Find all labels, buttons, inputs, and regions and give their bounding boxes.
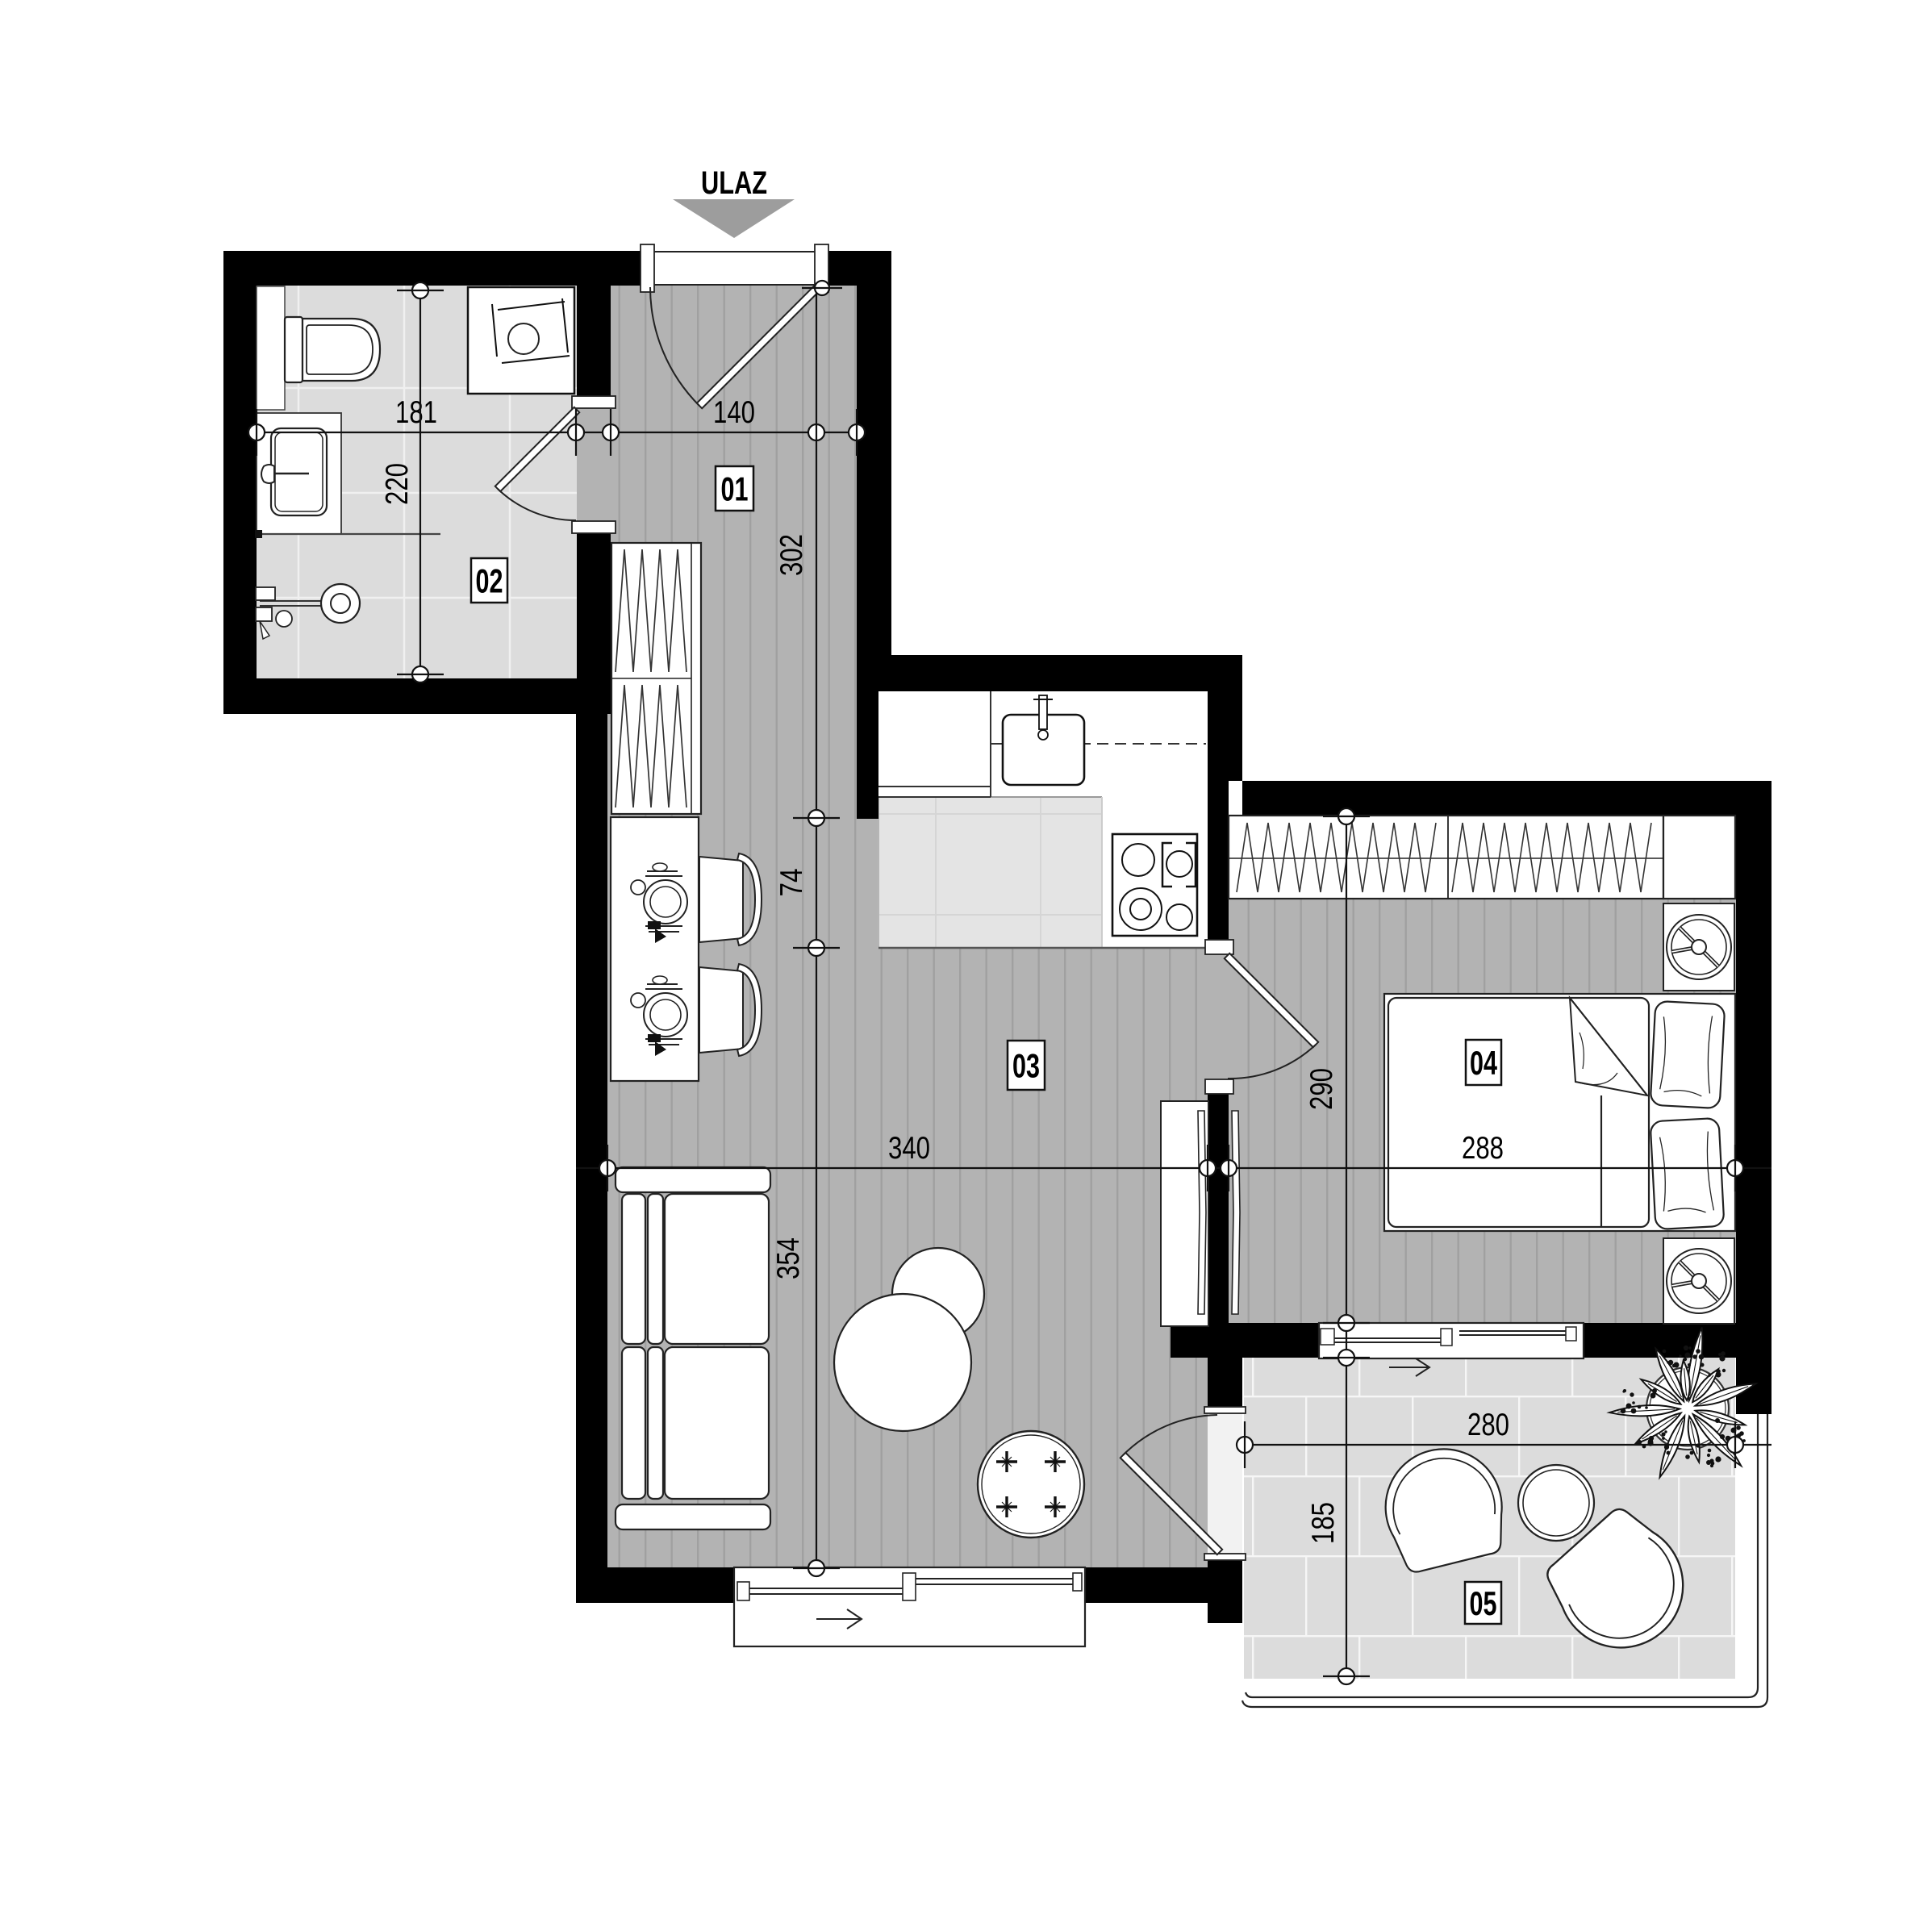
svg-text:220: 220 — [380, 463, 415, 505]
svg-text:280: 280 — [1467, 1408, 1509, 1442]
svg-text:74: 74 — [774, 869, 809, 897]
svg-text:290: 290 — [1304, 1068, 1339, 1110]
svg-text:02: 02 — [476, 562, 503, 600]
svg-text:340: 340 — [888, 1131, 930, 1166]
svg-text:185: 185 — [1306, 1502, 1341, 1544]
svg-text:01: 01 — [721, 470, 749, 508]
svg-text:04: 04 — [1470, 1044, 1497, 1082]
svg-text:05: 05 — [1470, 1584, 1497, 1622]
svg-text:302: 302 — [774, 534, 809, 576]
svg-text:140: 140 — [713, 395, 755, 430]
svg-text:03: 03 — [1012, 1047, 1040, 1085]
svg-text:181: 181 — [395, 395, 437, 430]
svg-text:288: 288 — [1462, 1131, 1504, 1166]
svg-text:ULAZ: ULAZ — [701, 165, 767, 201]
svg-text:354: 354 — [771, 1237, 806, 1279]
